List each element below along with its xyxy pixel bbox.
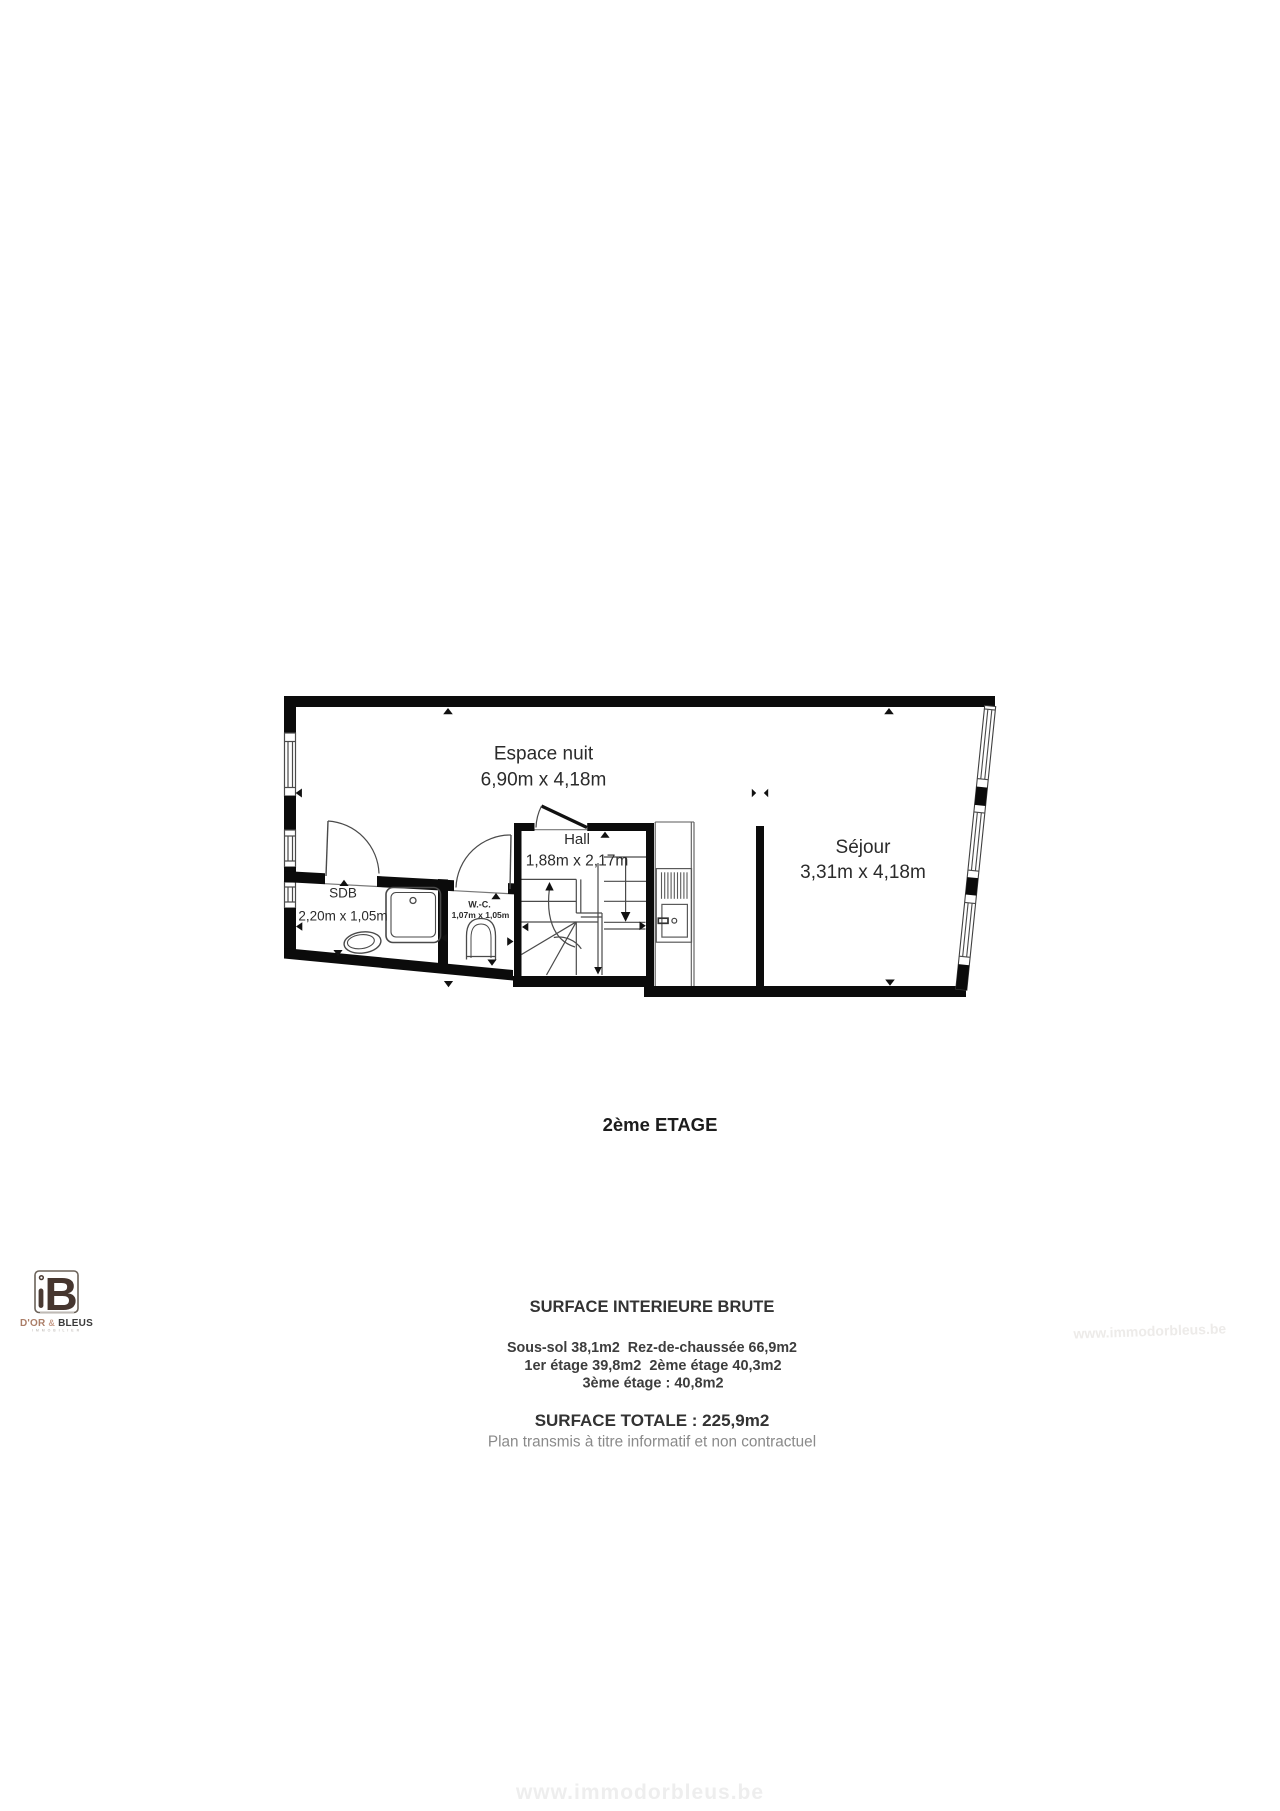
- svg-text:2ème ETAGE: 2ème ETAGE: [603, 1114, 718, 1135]
- svg-text:SURFACE INTERIEURE BRUTE: SURFACE INTERIEURE BRUTE: [530, 1298, 775, 1316]
- svg-text:1,07m x 1,05m: 1,07m x 1,05m: [452, 910, 510, 920]
- svg-text:Espace nuit: Espace nuit: [494, 744, 594, 765]
- svg-text:3,31m x 4,18m: 3,31m x 4,18m: [800, 862, 926, 883]
- svg-text:2,20m x 1,05m: 2,20m x 1,05m: [298, 909, 387, 924]
- svg-text:www.immodorbleus.be: www.immodorbleus.be: [515, 1781, 764, 1804]
- svg-text:1,88m x 2,17m: 1,88m x 2,17m: [526, 853, 629, 870]
- svg-text:Plan transmis à titre informat: Plan transmis à titre informatif et non …: [488, 1434, 816, 1451]
- svg-text:3ème étage : 40,8m2: 3ème étage : 40,8m2: [582, 1376, 723, 1392]
- svg-text:Sous-sol 38,1m2 Rez-de-chauss: Sous-sol 38,1m2 Rez-de-chaussée 66,9m2: [507, 1340, 797, 1356]
- svg-text:SDB: SDB: [329, 886, 357, 901]
- svg-text:Séjour: Séjour: [836, 837, 892, 858]
- svg-text:SURFACE TOTALE : 225,9m2: SURFACE TOTALE : 225,9m2: [535, 1411, 770, 1430]
- svg-text:W.-C.: W.-C.: [468, 900, 491, 910]
- svg-text:Hall: Hall: [564, 831, 590, 848]
- svg-text:D'OR & BLEUS: D'OR & BLEUS: [20, 1318, 93, 1329]
- svg-text:1er étage 39,8m2 2ème étage 4: 1er étage 39,8m2 2ème étage 40,3m2: [524, 1358, 781, 1374]
- svg-text:I M M O B I L I E R: I M M O B I L I E R: [32, 1329, 80, 1333]
- svg-text:6,90m x 4,18m: 6,90m x 4,18m: [481, 770, 607, 791]
